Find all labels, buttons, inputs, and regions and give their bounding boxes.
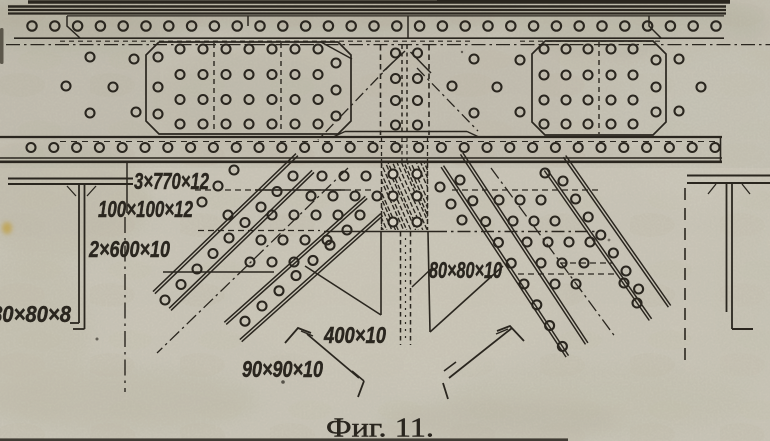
svg-text:80×80×8: 80×80×8 — [0, 301, 71, 327]
svg-text:Фиг. 11.: Фиг. 11. — [326, 413, 434, 441]
svg-text:400×10: 400×10 — [323, 322, 386, 348]
svg-text:100×100×12: 100×100×12 — [98, 196, 193, 222]
svg-text:2×600×10: 2×600×10 — [88, 236, 170, 262]
svg-text:90×90×10: 90×90×10 — [242, 356, 323, 382]
svg-text:3×770×12: 3×770×12 — [134, 168, 209, 194]
svg-text:80×80×10: 80×80×10 — [429, 257, 502, 283]
